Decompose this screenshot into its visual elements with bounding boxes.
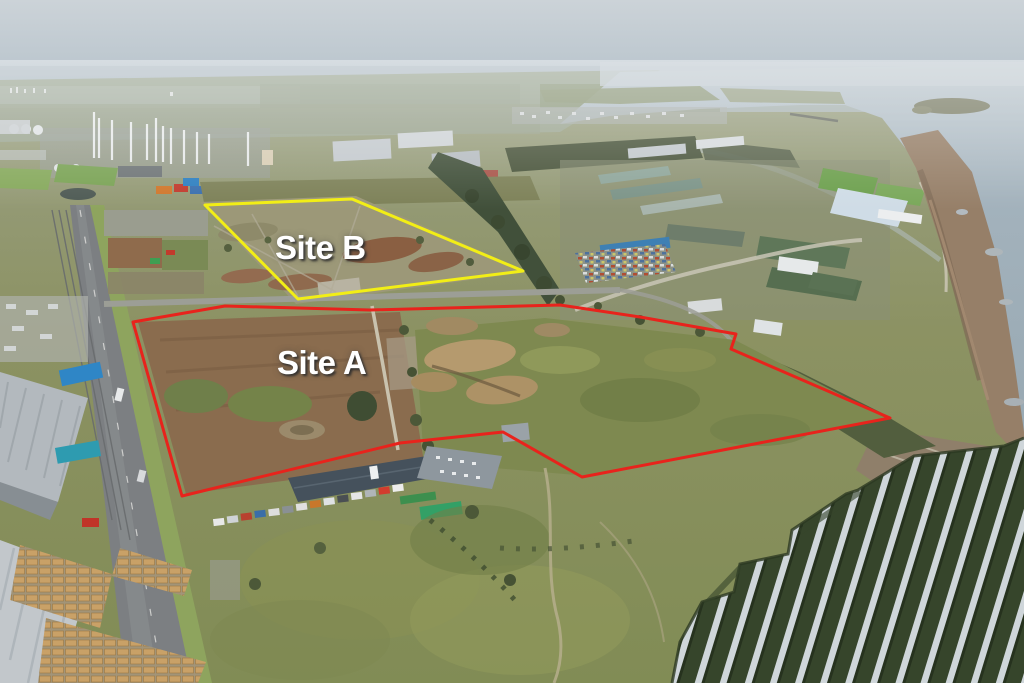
roadside-plots: [104, 210, 208, 294]
atmospheric-haze: [0, 60, 1024, 210]
aerial-photo-painting: [0, 0, 1024, 683]
tree: [347, 391, 377, 421]
aerial-photo: Site B Site A: [0, 0, 1024, 683]
site-a-label: Site A: [277, 346, 366, 379]
site-b-label: Site B: [275, 231, 366, 264]
